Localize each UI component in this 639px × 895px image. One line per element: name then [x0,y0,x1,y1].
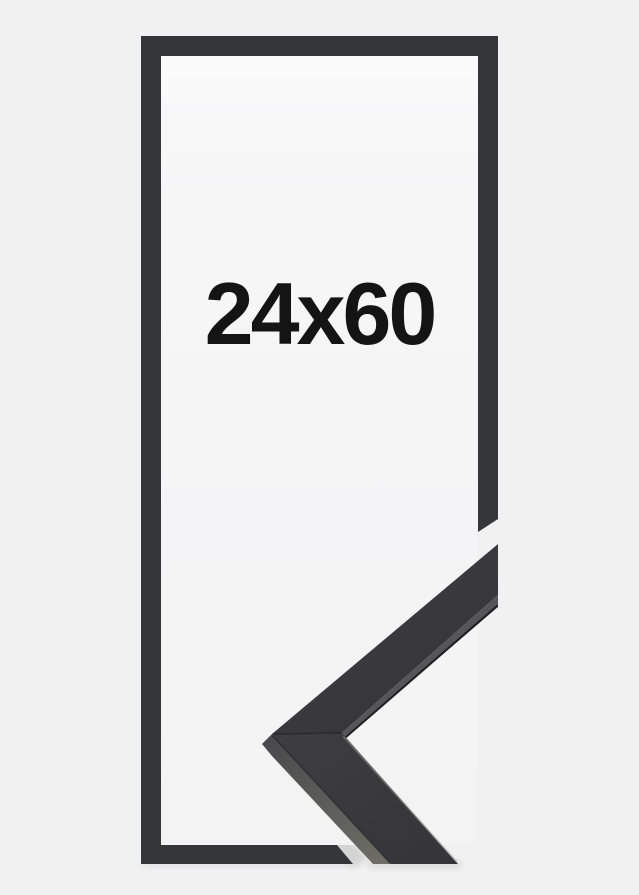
frame-illustration [0,0,639,895]
frame-size-label: 24x60 [141,266,498,362]
frame-product-image: 24x60 [0,0,639,895]
miter-seam [273,733,341,734]
